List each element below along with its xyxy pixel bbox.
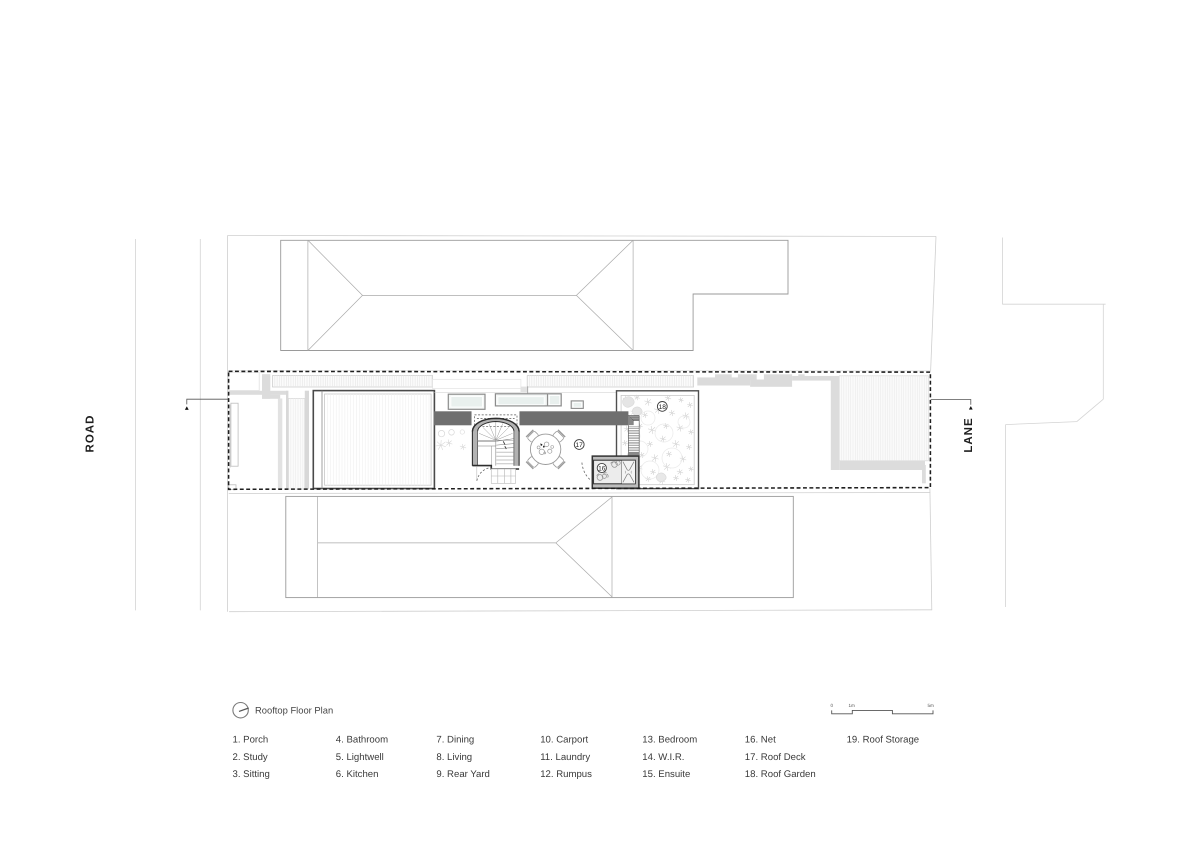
svg-text:3. Sitting: 3. Sitting (233, 769, 270, 780)
svg-text:2. Study: 2. Study (233, 752, 268, 763)
svg-text:LANE: LANE (963, 417, 975, 452)
svg-text:7. Dining: 7. Dining (436, 734, 474, 745)
svg-text:13. Bedroom: 13. Bedroom (642, 734, 697, 745)
svg-text:10. Carport: 10. Carport (540, 734, 588, 745)
svg-text:12. Rumpus: 12. Rumpus (540, 769, 592, 780)
svg-text:6. Kitchen: 6. Kitchen (336, 769, 379, 780)
svg-text:Rooftop Floor Plan: Rooftop Floor Plan (255, 704, 333, 715)
svg-text:18. Roof Garden: 18. Roof Garden (745, 769, 816, 780)
svg-text:15. Ensuite: 15. Ensuite (642, 769, 690, 780)
svg-text:1. Porch: 1. Porch (233, 734, 269, 745)
svg-text:17. Roof Deck: 17. Roof Deck (745, 752, 806, 763)
svg-text:ROAD: ROAD (85, 415, 97, 453)
svg-text:11. Laundry: 11. Laundry (540, 752, 590, 763)
svg-text:5m: 5m (928, 703, 935, 708)
svg-text:9. Rear Yard: 9. Rear Yard (436, 769, 490, 780)
svg-text:0: 0 (831, 703, 834, 708)
svg-text:14. W.I.R.: 14. W.I.R. (642, 752, 684, 763)
svg-text:5. Lightwell: 5. Lightwell (336, 752, 384, 763)
svg-text:1m: 1m (849, 703, 856, 708)
svg-text:19. Roof Storage: 19. Roof Storage (847, 734, 920, 745)
svg-text:8. Living: 8. Living (436, 752, 472, 763)
svg-text:16: 16 (598, 465, 606, 472)
svg-text:17: 17 (576, 442, 584, 449)
svg-text:4. Bathroom: 4. Bathroom (336, 734, 388, 745)
svg-text:18: 18 (659, 404, 667, 411)
svg-text:16. Net: 16. Net (745, 734, 776, 745)
